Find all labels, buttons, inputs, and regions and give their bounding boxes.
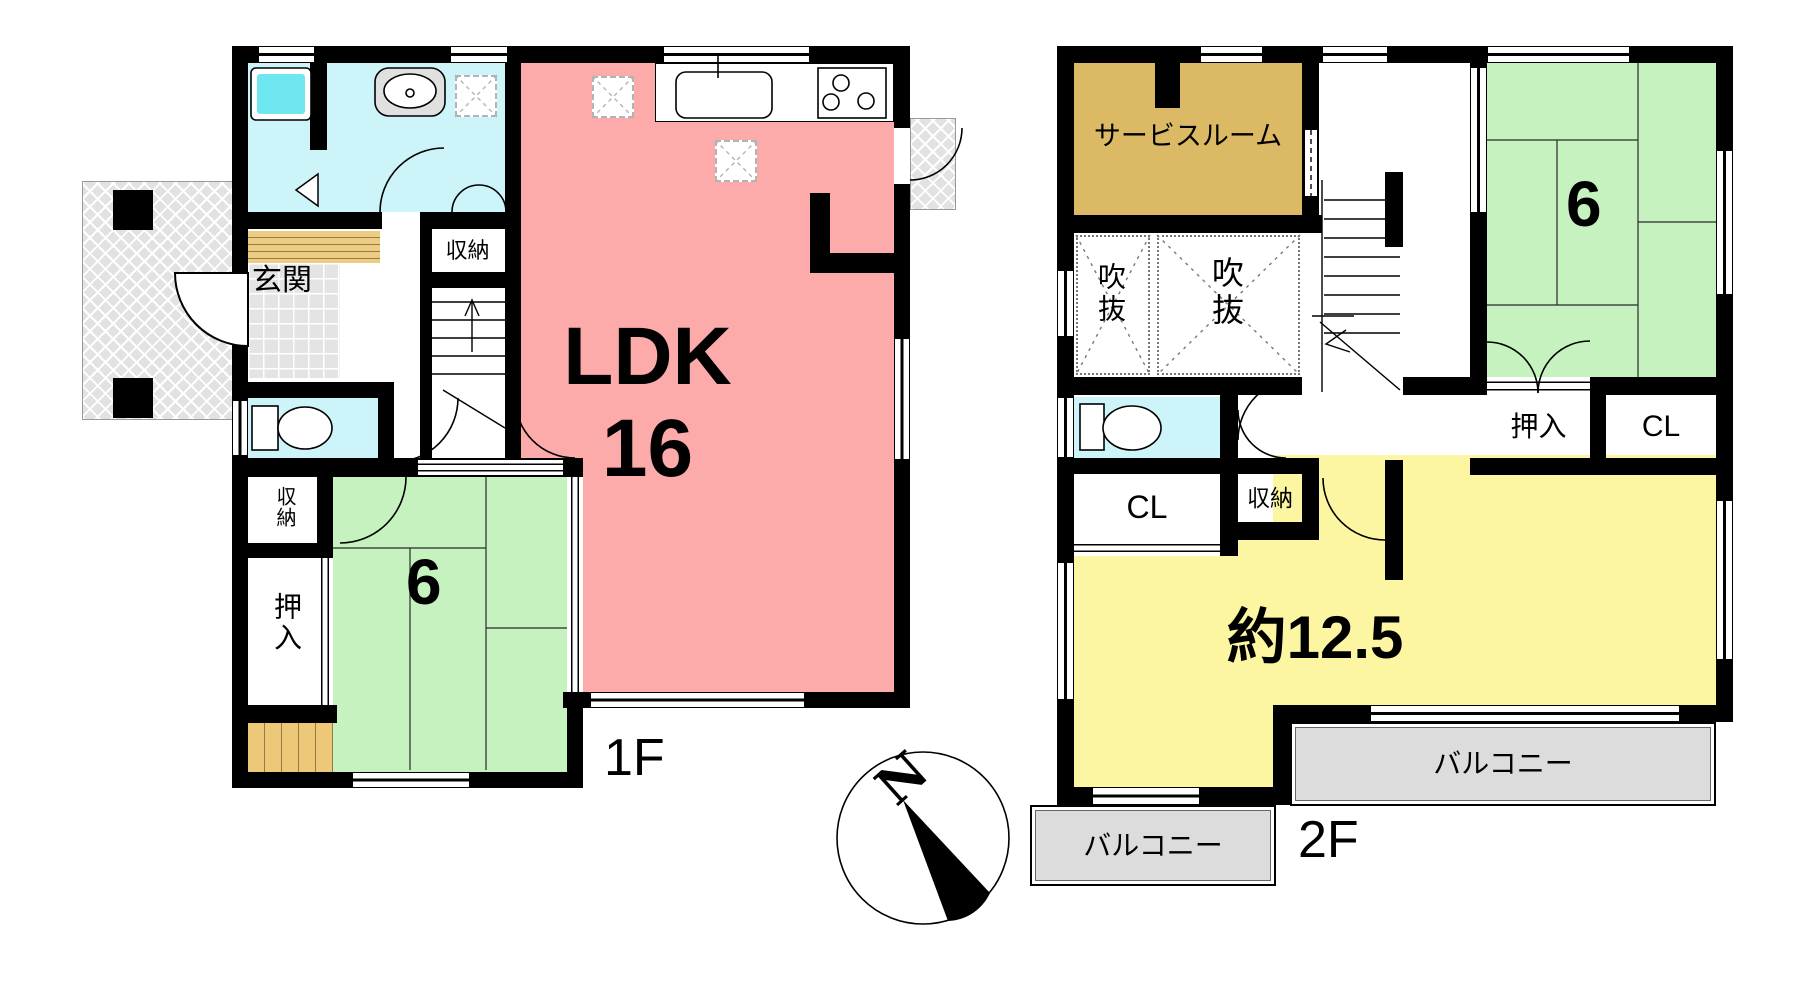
terrace-post bbox=[113, 378, 153, 418]
wall bbox=[1057, 46, 1733, 63]
balcony-left: バルコニー bbox=[1030, 805, 1276, 886]
wall bbox=[420, 272, 521, 288]
stairs-1f bbox=[432, 300, 505, 428]
wall bbox=[1220, 395, 1238, 556]
floor1-label: 1F bbox=[604, 732, 665, 784]
ldk-name: LDK bbox=[563, 316, 732, 398]
window bbox=[352, 772, 470, 788]
wall bbox=[1302, 458, 1319, 540]
wall bbox=[420, 212, 521, 229]
front-door-opening bbox=[232, 273, 248, 343]
closet-right-text: CL bbox=[1642, 412, 1680, 442]
wall bbox=[1385, 460, 1403, 580]
storage-2f-label: 収納 bbox=[1238, 478, 1302, 518]
wall-l-nook-h bbox=[810, 253, 894, 273]
ldk-label-block: LDK 16 bbox=[505, 300, 790, 505]
floor2-label: 2F bbox=[1298, 814, 1359, 866]
tatami-1f-size: 6 bbox=[406, 550, 442, 614]
wall bbox=[248, 212, 382, 229]
balcony-right-floor: バルコニー bbox=[1295, 727, 1711, 801]
wall bbox=[1403, 377, 1470, 395]
window bbox=[1470, 67, 1487, 213]
window bbox=[663, 46, 810, 63]
window bbox=[450, 46, 508, 63]
void-right-label: 吹抜 bbox=[1210, 256, 1242, 330]
room-tatami-1f bbox=[333, 477, 567, 772]
main-room-text: 約12.5 bbox=[1227, 608, 1404, 668]
genkan-label: 玄関 bbox=[252, 266, 312, 296]
window bbox=[232, 400, 248, 456]
hatch-square bbox=[455, 75, 497, 117]
wall bbox=[567, 692, 583, 788]
window bbox=[1057, 270, 1074, 337]
closet-left-label: CL bbox=[1074, 484, 1220, 530]
storage-2f-text: 収納 bbox=[1247, 487, 1293, 510]
tatami-2f-size: 6 bbox=[1566, 172, 1602, 236]
wall bbox=[248, 705, 337, 723]
wall bbox=[248, 382, 394, 398]
window bbox=[1487, 46, 1630, 63]
wall bbox=[1590, 395, 1606, 458]
oshiire-2f-text: 押入 bbox=[1510, 413, 1566, 441]
wall bbox=[1385, 172, 1403, 247]
closet-right-label: CL bbox=[1606, 406, 1716, 448]
storage-corner-label: 収納 bbox=[274, 486, 294, 528]
room-main-d bbox=[1238, 540, 1273, 556]
compass-icon: N bbox=[837, 740, 1009, 924]
wall bbox=[1057, 458, 1238, 474]
backdoor-stoop bbox=[910, 118, 956, 210]
kitchen-counter bbox=[655, 63, 894, 122]
window bbox=[1200, 46, 1263, 63]
window bbox=[1716, 500, 1733, 660]
sliding-door bbox=[317, 558, 333, 705]
window bbox=[1322, 46, 1388, 63]
window bbox=[1057, 397, 1074, 458]
storage-hall-text: 収納 bbox=[445, 240, 489, 262]
wall bbox=[1057, 215, 1322, 233]
compass-north-label: N bbox=[864, 740, 940, 817]
wall bbox=[248, 543, 333, 558]
closet-front bbox=[1074, 540, 1220, 556]
window bbox=[894, 338, 910, 460]
wall bbox=[1238, 377, 1302, 395]
window bbox=[1092, 787, 1200, 805]
wall bbox=[1057, 377, 1238, 395]
service-room-label: サービスルーム bbox=[1074, 118, 1302, 154]
back-door-opening bbox=[894, 128, 910, 184]
sliding-door bbox=[567, 477, 583, 692]
window bbox=[258, 46, 315, 63]
floor-plan: バルコニー バルコニー bbox=[0, 0, 1819, 1005]
service-room-text: サービスルーム bbox=[1094, 123, 1282, 150]
balcony-left-label: バルコニー bbox=[1083, 832, 1222, 860]
void-left-label: 吹抜 bbox=[1096, 262, 1124, 326]
wall bbox=[1470, 458, 1733, 475]
window bbox=[1716, 150, 1733, 295]
wall bbox=[1238, 458, 1302, 474]
ldk-size: 16 bbox=[602, 408, 693, 490]
balcony-left-floor: バルコニー bbox=[1035, 810, 1271, 881]
terrace-post bbox=[113, 190, 153, 230]
wall-service-notch bbox=[1155, 63, 1180, 108]
genkan-step bbox=[248, 231, 380, 263]
wood-strip bbox=[248, 723, 333, 772]
room-toilet-1f bbox=[248, 398, 378, 458]
closet-front bbox=[1487, 377, 1590, 395]
wall bbox=[378, 398, 394, 458]
nook-door-arc bbox=[1238, 410, 1286, 458]
hatch-square bbox=[715, 140, 757, 182]
terrace-deck bbox=[82, 181, 238, 420]
hatch-square bbox=[592, 76, 634, 118]
window bbox=[1370, 705, 1680, 722]
main-room-label: 約12.5 bbox=[1065, 602, 1565, 674]
room-toilet-2f bbox=[1074, 397, 1220, 458]
wall bbox=[310, 63, 327, 150]
balcony-right-label: バルコニー bbox=[1433, 750, 1572, 778]
closet-left-text: CL bbox=[1127, 491, 1168, 523]
wall bbox=[1302, 63, 1319, 215]
window bbox=[590, 692, 805, 708]
wall bbox=[1238, 522, 1302, 540]
balcony-right: バルコニー bbox=[1290, 722, 1716, 806]
compass-needle bbox=[903, 800, 990, 921]
oshiire-2f-label: 押入 bbox=[1487, 406, 1590, 448]
oshiire-1f-label: 押入 bbox=[272, 592, 300, 654]
storage-hall-label: 収納 bbox=[430, 236, 505, 266]
